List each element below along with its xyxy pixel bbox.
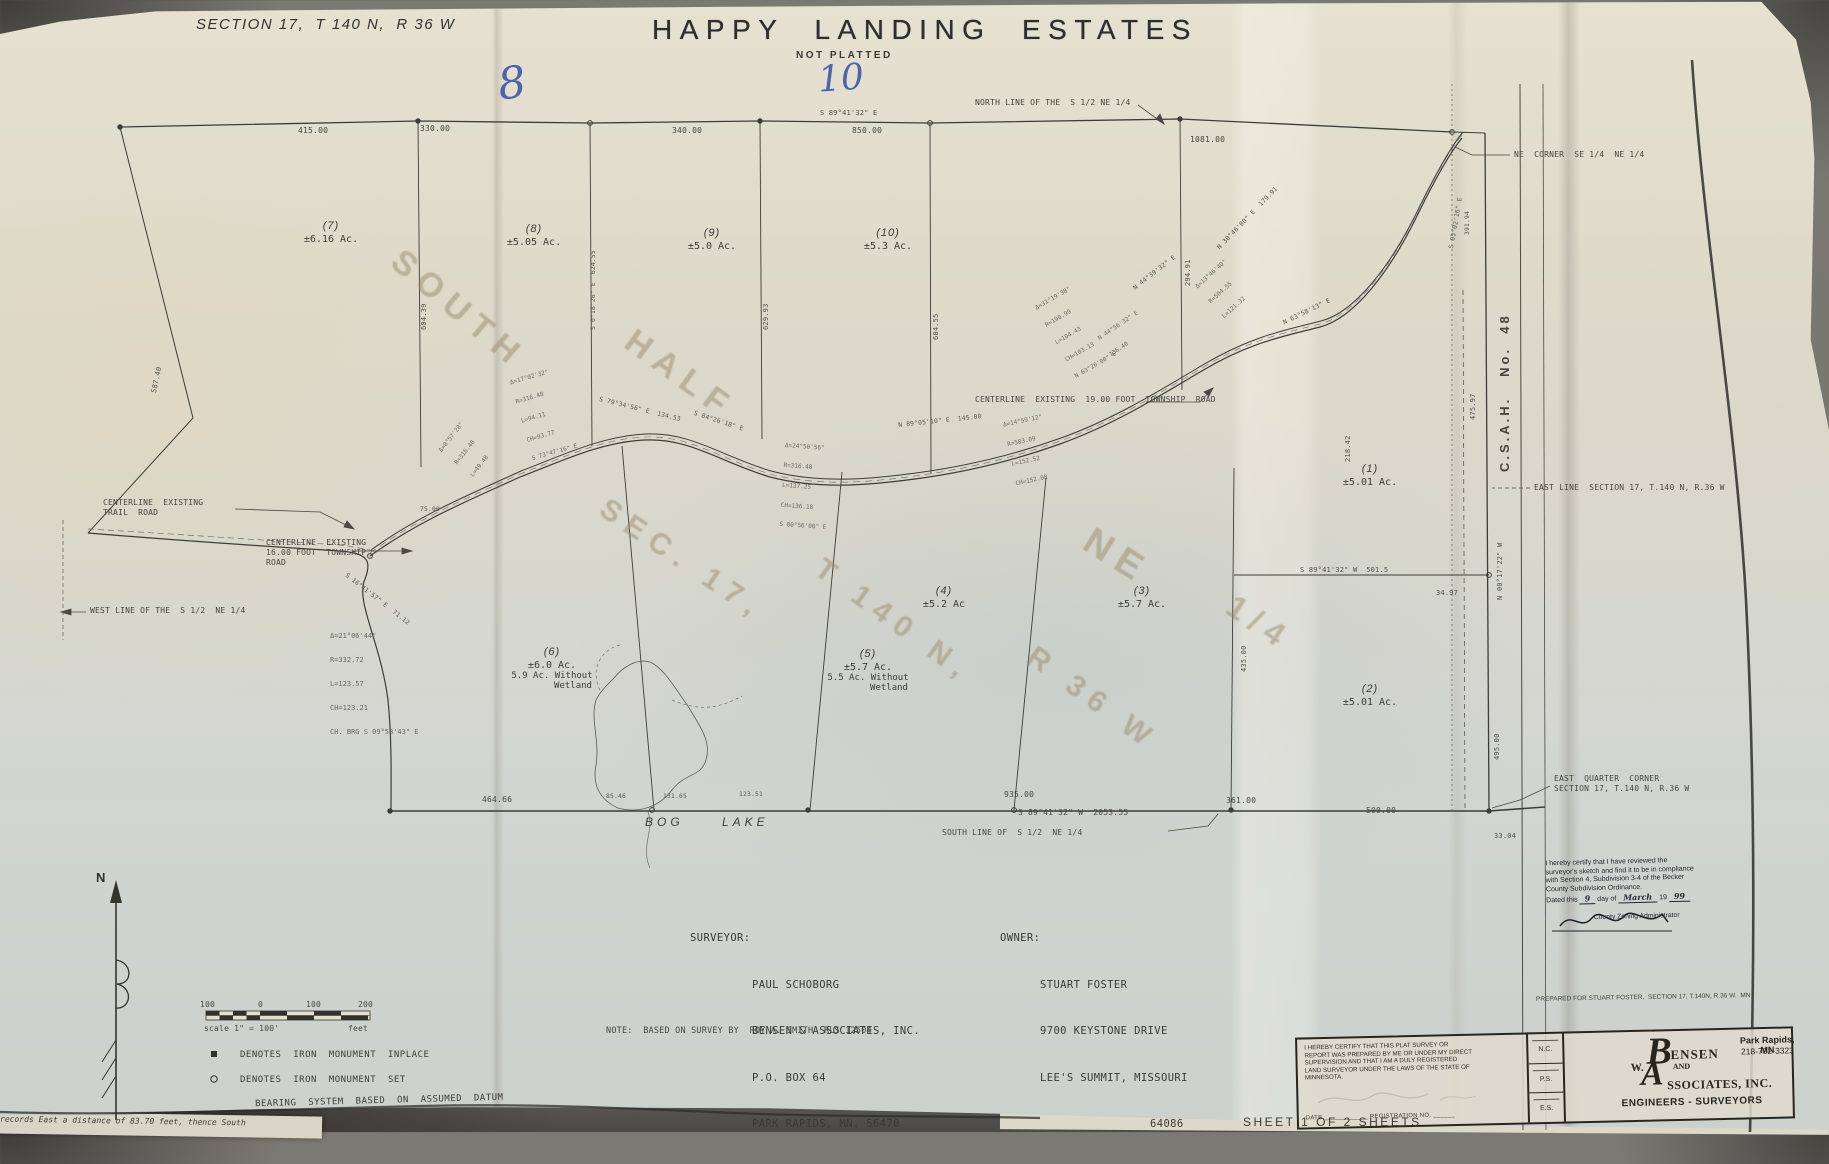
dim-label: 495.00 xyxy=(1493,734,1501,761)
bearing-line: Δ=17°02'32" xyxy=(510,368,557,387)
west-line-label: WEST LINE OF THE S 1/2 NE 1/4 xyxy=(90,606,246,615)
bearing-line: L=49.48 xyxy=(470,446,497,479)
owner-city: LEE'S SUMMIT, MISSOURI xyxy=(1000,1071,1188,1087)
initials-cell: N.C. xyxy=(1528,1034,1563,1064)
scale-tick-label: 100 xyxy=(200,1000,215,1009)
dim-label: 935.00 xyxy=(1004,790,1034,799)
dim-label: 500.00 xyxy=(1366,806,1396,815)
lot-label-2: (2) ±5.01 Ac. xyxy=(1322,683,1418,708)
lot-acreage-wetland: 5.9 Ac. Without xyxy=(492,671,612,681)
dim-label: 475.97 xyxy=(1469,394,1477,421)
lot-label-4: (4) ±5.2 Ac xyxy=(896,585,992,610)
county-stamp: I hereby certify that I have reviewed th… xyxy=(1545,856,1727,924)
bearing-line: S 80°56'00" E xyxy=(779,522,826,532)
dim-label: 629.93 xyxy=(762,304,770,331)
bearing-line: Δ=24°50'56" xyxy=(785,443,832,453)
lot-label-5: (5) ±5.7 Ac. 5.5 Ac. Without Wetland xyxy=(808,648,928,693)
dim-label: 850.00 xyxy=(852,126,882,135)
dim-label: 34.97 xyxy=(1436,589,1458,597)
township-road xyxy=(370,132,1463,556)
compass-n-label: N xyxy=(96,870,105,885)
legend-set: DENOTES IRON MONUMENT SET xyxy=(240,1075,406,1085)
lot-acreage: ±6.0 Ac. xyxy=(492,660,612,671)
lot-acreage: ±5.01 Ac. xyxy=(1322,477,1418,488)
bearing-line: L=137.25 xyxy=(782,483,829,493)
centerline-trail-label-1: CENTERLINE EXISTING xyxy=(103,498,203,507)
section-label: SECTION 17, T 140 N, R 36 W xyxy=(196,16,455,33)
east-quarter-corner-label-2: SECTION 17, T.140 N, R.36 W xyxy=(1554,784,1689,793)
lot-acreage: ±6.16 Ac. xyxy=(283,234,379,245)
lot-acreage-wetland-2: Wetland xyxy=(808,683,928,693)
lot-label-10: (10) ±5.3 Ac. xyxy=(840,227,936,252)
owner-street: 9700 KEYSTONE DRIVE xyxy=(1000,1024,1188,1040)
lot-label-8: (8) ±5.05 Ac. xyxy=(486,223,582,248)
legend-symbols xyxy=(211,1051,217,1082)
centerline-19-label: CENTERLINE EXISTING 19.00 FOOT TOWNSHIP … xyxy=(975,395,1216,404)
initials-cell: E.S. xyxy=(1529,1093,1564,1122)
bog-lake-outline xyxy=(594,645,742,868)
south-line-label: SOUTH LINE OF S 1/2 NE 1/4 xyxy=(942,828,1082,837)
bearing-line: CH=136.18 xyxy=(780,502,827,512)
bearing-line: CH. BRG S 09°58'43" E xyxy=(330,728,419,736)
scale-caption: scale 1" = 100' xyxy=(204,1024,279,1033)
bearing-line: CH=123.21 xyxy=(330,704,419,712)
bearing-line: R=316.48 xyxy=(783,463,830,473)
bearing-line: R=583.09 xyxy=(1007,434,1047,449)
surveyor-po-box: P.O. BOX 64 xyxy=(690,1071,920,1087)
ne-corner-label: NE CORNER SE 1/4 NE 1/4 xyxy=(1514,150,1644,159)
dim-label: 131.65 xyxy=(663,793,687,800)
lot-label-7: (7) ±6.16 Ac. xyxy=(283,220,379,245)
lot-number: (3) xyxy=(1094,585,1190,597)
bearing-line: L=152.52 xyxy=(1011,453,1051,468)
dim-label: 340.00 xyxy=(672,126,702,135)
bog-label: BOG xyxy=(645,815,684,829)
bearing-line: L=123.57 xyxy=(330,680,419,688)
lot-number: (7) xyxy=(283,220,379,232)
page-title: HAPPY LANDING ESTATES xyxy=(652,14,1198,46)
logo-tagline: ENGINEERS - SURVEYORS xyxy=(1621,1095,1762,1109)
north-line-label: NORTH LINE OF THE S 1/2 NE 1/4 xyxy=(975,98,1131,107)
company-phone: 218-732-3323 xyxy=(1732,1045,1802,1057)
lot-number: (4) xyxy=(896,585,992,597)
dim-label: 604.55 xyxy=(932,314,940,341)
dim-label: 75.00 xyxy=(420,506,440,513)
centerline-16-label-3: ROAD xyxy=(266,558,286,567)
dim-label: 604.39 xyxy=(420,304,428,331)
lot-number: (2) xyxy=(1322,683,1418,695)
bearing-line: Δ=14°59'12" xyxy=(1003,415,1043,430)
dim-label: 330.00 xyxy=(420,124,450,133)
owner-block: OWNER: STUART FOSTER 9700 KEYSTONE DRIVE… xyxy=(1000,900,1188,1164)
titleblock-initials: N.C. P.S. E.S. xyxy=(1528,1034,1566,1123)
lot-number: (6) xyxy=(492,646,612,658)
company-logo: W. B ENSEN AND A SSOCIATES, INC. ENGINEE… xyxy=(1564,1028,1793,1121)
dim-label: 361.00 xyxy=(1226,796,1256,805)
under-sheet-edge xyxy=(1692,60,1753,1132)
csah-road xyxy=(1452,84,1546,1130)
dim-label: 415.00 xyxy=(298,126,328,135)
bearing-line: CH=152.08 xyxy=(1015,473,1055,488)
dim-label: S 0°18'26" E 624.55 xyxy=(590,250,597,330)
lot-number: (10) xyxy=(840,227,936,239)
initials-cell: P.S. xyxy=(1529,1063,1564,1093)
dim-label: S 89°41'32" E xyxy=(820,109,877,117)
dim-label: S 89°41'32" W 501.5 xyxy=(1300,566,1388,574)
lot-label-3: (3) ±5.7 Ac. xyxy=(1094,585,1190,610)
lot-number: (9) xyxy=(664,227,760,239)
bearing-line: Δ=21°06'44" xyxy=(330,632,419,640)
logo-and: AND xyxy=(1673,1062,1691,1071)
csah-48-label: C.S.A.H. No. 48 xyxy=(1497,313,1512,472)
centerline-16-label-1: CENTERLINE EXISTING xyxy=(266,538,366,547)
surveyor-label: SURVEYOR: xyxy=(690,931,920,947)
dim-label: 85.46 xyxy=(606,793,626,800)
lot-acreage: ±5.7 Ac. xyxy=(1094,599,1190,610)
owner-label: OWNER: xyxy=(1000,931,1188,947)
scale-tick-label: 0 xyxy=(258,1000,263,1009)
scale-tick-label: 100 xyxy=(306,1000,321,1009)
lot-acreage: ±5.05 Ac. xyxy=(486,237,582,248)
bearing-line: CH=93.77 xyxy=(526,425,573,444)
dim-label: 391.94 xyxy=(1464,211,1471,235)
logo-a-initial: A xyxy=(1641,1055,1665,1094)
lot-number: (8) xyxy=(486,223,582,235)
lot-number: (5) xyxy=(808,648,928,660)
lot-acreage: ±5.3 Ac. xyxy=(840,241,936,252)
lot-acreage: ±5.7 Ac. xyxy=(808,662,928,673)
surveyor-city: PARK RAPIDS, MN. 56470 xyxy=(690,1117,920,1133)
bearing-cluster: Δ=24°50'56" R=316.48 L=137.25 CH=136.18 … xyxy=(778,430,833,545)
dim-label: 218.42 xyxy=(1344,436,1352,463)
north-arrow xyxy=(102,880,129,1120)
lot-number: (1) xyxy=(1322,463,1418,475)
bearing-line: S 73°47'16" E xyxy=(531,444,578,463)
dim-label: 123.51 xyxy=(739,791,763,798)
dim-label: 464.66 xyxy=(482,795,512,804)
dim-label: 435.00 xyxy=(1240,646,1248,673)
lot-acreage: ±5.2 Ac xyxy=(896,599,992,610)
handwritten-ten: 10 xyxy=(817,56,866,100)
curve-data-block: Δ=21°06'44" R=332.72 L=123.57 CH=123.21 … xyxy=(330,616,419,752)
logo-ensen: ENSEN xyxy=(1670,1046,1719,1063)
dim-label: 33.04 xyxy=(1494,832,1516,840)
plat-content: SECTION 17, T 140 N, R 36 W HAPPY LANDIN… xyxy=(0,0,1829,1132)
dim-label: S 89°41'32" W 2053.55 xyxy=(1018,808,1128,817)
owner-zip: 64086 xyxy=(1000,1117,1188,1133)
lake-label: LAKE xyxy=(722,815,769,829)
bearing-line: L=94.11 xyxy=(521,406,568,425)
east-quarter-corner-label-1: EAST QUARTER CORNER xyxy=(1554,774,1659,783)
scale-unit: feet xyxy=(348,1024,368,1033)
lot-acreage-wetland-2: Wetland xyxy=(492,681,612,691)
lot-label-1: (1) ±5.01 Ac. xyxy=(1322,463,1418,488)
bearing-line: R=316.48 xyxy=(515,387,562,406)
sheet-number-note: SHEET 1 OF 2 SHEETS xyxy=(1243,1115,1422,1129)
east-line-label: EAST LINE SECTION 17, T.140 N, R.36 W xyxy=(1534,483,1725,492)
centerline-16-label-2: 16.00 FOOT TOWNSHIP xyxy=(266,548,366,557)
lot-acreage: ±5.0 Ac. xyxy=(664,241,760,252)
dim-label: N 00°17'22" W xyxy=(1496,543,1504,600)
survey-note: NOTE: BASED ON SURVEY BY ROY A. SMITH RL… xyxy=(606,1026,872,1036)
dim-label: 1081.00 xyxy=(1190,135,1225,144)
legend-inplace: DENOTES IRON MONUMENT INPLACE xyxy=(240,1050,429,1060)
bearing-line: R=332.72 xyxy=(330,656,419,664)
owner-name: STUART FOSTER xyxy=(1000,978,1188,994)
lot-label-9: (9) ±5.0 Ac. xyxy=(664,227,760,252)
bearing-line: L=121.32 xyxy=(1221,289,1255,320)
scale-bar xyxy=(206,1011,370,1020)
logo-associates: SSOCIATES, INC. xyxy=(1667,1076,1772,1093)
lot-acreage-wetland: 5.5 Ac. Without xyxy=(808,673,928,683)
surveyor-name: PAUL SCHOBORG xyxy=(690,978,920,994)
titleblock-certification: I HEREBY CERTIFY THAT THIS PLAT SURVEY O… xyxy=(1297,1034,1530,1127)
lot-label-6: (6) ±6.0 Ac. 5.9 Ac. Without Wetland xyxy=(492,646,612,691)
scale-tick-label: 200 xyxy=(358,1000,373,1009)
lot-acreage: ±5.01 Ac. xyxy=(1322,697,1418,708)
centerline-trail-label-2: TRAIL ROAD xyxy=(103,508,158,517)
